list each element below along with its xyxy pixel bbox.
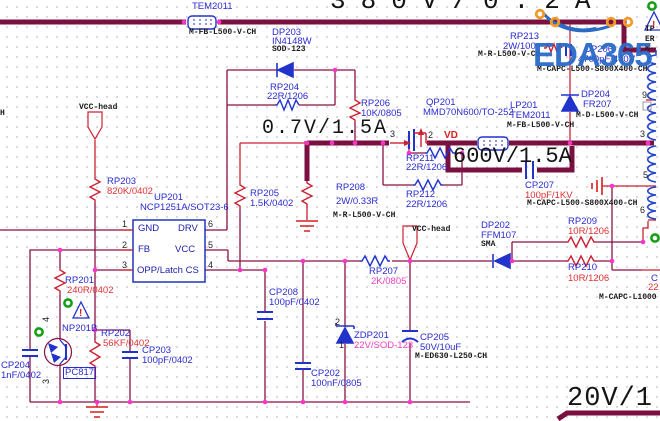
power-port-vcc-head-left[interactable] <box>88 112 102 139</box>
ref-rp208: RP208 <box>336 183 365 193</box>
value-rp208: 2W/0.33R <box>336 197 378 207</box>
eda365-watermark: EDA365 <box>533 36 652 74</box>
value-clipped-cap: 22 <box>648 283 659 293</box>
net-label-vd: VD <box>444 131 458 141</box>
optocoupler-np201b[interactable] <box>45 339 72 366</box>
resistors-red[interactable] <box>55 44 596 368</box>
pin-qp201-2: 2 <box>428 131 433 140</box>
pin-up201-3: 3 <box>122 261 127 270</box>
value-rp209: 10R/1206 <box>568 227 609 237</box>
pin-qp201-3: 3 <box>390 130 395 139</box>
resistor-rp205 <box>235 183 245 210</box>
partnum-cp207: M-CAPC-L500-S800X400-CH <box>527 200 637 208</box>
diode-dp202 <box>493 254 510 268</box>
pin-xfmr-3: 3 <box>640 130 645 139</box>
value-cp202: 100nF/0805 <box>311 379 362 389</box>
power-bus-wires[interactable] <box>0 22 660 419</box>
pin-up201-2: 2 <box>122 241 127 250</box>
value-cp208: 100pF/0402 <box>269 298 320 308</box>
rating-20v: 20V/1 <box>567 386 653 413</box>
value-rp206: 10K/0805 <box>361 109 402 119</box>
icpin-opp-latch-cs: OPP/Latch CS <box>137 266 199 276</box>
icpin-gnd: GND <box>138 224 159 234</box>
value-cp204: 1nF/0402 <box>1 371 41 381</box>
value-zdp201: 22V/SOD-123 <box>354 341 413 351</box>
rating-600v: 600V/1.5A <box>453 146 572 168</box>
pin-up201-4: 4 <box>208 261 213 270</box>
partnum-lp202: M-FB-L500-V-CH <box>189 29 256 37</box>
pin-xfmr-6: 6 <box>640 206 645 215</box>
rating-380v: 380V/0.2A <box>330 0 605 14</box>
capacitor-cp203 <box>122 352 138 358</box>
no-erc-icon <box>35 328 42 335</box>
transformer-winding[interactable] <box>648 50 656 219</box>
value-rp203: 820K/0402 <box>107 187 153 197</box>
capacitor-cp208 <box>257 312 273 319</box>
schematic-canvas[interactable]: ! ! EDA365 380V/0.2A0.7V/1.5A600V <box>0 0 660 421</box>
pin-xfmr-5: 5 <box>643 171 648 180</box>
pin-up201-5: 5 <box>208 241 213 250</box>
capacitor-cp204 <box>22 350 38 356</box>
pin-np201b-4: 4 <box>42 317 51 322</box>
resistor-rp203 <box>90 177 100 203</box>
no-erc-icon <box>64 299 71 306</box>
capacitor-cp202 <box>295 363 311 369</box>
value-rp207: 2K/0805 <box>371 277 406 287</box>
resistor-rp208 <box>302 181 312 208</box>
no-erc-icon <box>648 2 655 9</box>
partnum-cp-right: M-CAPC-L1000 <box>599 294 657 302</box>
resistor-rp209 <box>566 237 596 247</box>
partnum-dp203: SOD-123 <box>272 46 306 54</box>
ground-main <box>86 407 108 417</box>
value-cp203: 100pF/0402 <box>142 356 193 366</box>
value-rp204: 22R/1206 <box>267 92 308 102</box>
logo-dot-icon <box>624 18 632 26</box>
resistor-rp202 <box>90 340 100 368</box>
ref-lp202-type: TEM2011 <box>192 2 232 12</box>
value-rp205: 1.5K/0402 <box>250 199 293 209</box>
icpin-vcc: VCC <box>175 245 195 255</box>
pin-np201b-3: 3 <box>42 379 51 384</box>
value-qp201: MMD70N600/TO-252 <box>423 108 514 118</box>
resistor-rp207 <box>360 256 390 266</box>
pin-up201-1: 1 <box>122 220 127 229</box>
svg-text:!: ! <box>79 308 82 319</box>
resistor-rp201 <box>55 268 65 295</box>
value-rp212: 22R/1206 <box>406 200 447 210</box>
no-erc-icon <box>651 234 658 241</box>
pin-zdp201-2: 2 <box>335 318 340 327</box>
value-lp201: TEM2011 <box>510 111 550 121</box>
rating-0v7: 0.7V/1.5A <box>262 119 388 139</box>
value-dp204: FR207 <box>583 100 612 110</box>
value-up201: NCP1251A/SOT23-6 <box>140 203 229 213</box>
ground-rp208 <box>296 221 318 231</box>
ref-np201b: NP201B <box>62 324 97 334</box>
icpin-drv: DRV <box>178 224 198 234</box>
partnum-rp213: M-R-L500-V-CH <box>478 51 540 59</box>
pin-zdp201-1: 1 <box>339 341 344 350</box>
pin-up201-6: 6 <box>208 220 213 229</box>
partnum-rp208: M-R-L500-V-CH <box>333 212 395 220</box>
value-np201b: PC817 <box>64 368 95 378</box>
ref-tp-clipped: TP <box>645 26 655 34</box>
partnum-left-clipped: H <box>0 110 5 118</box>
partnum-lp201: M-FB-L500-V-CH <box>507 122 574 130</box>
port-vcc-head-right: VCC-head <box>412 226 450 234</box>
partnum-cp205: M-ED630-L250-CH <box>415 353 487 361</box>
partnum-dp204: M-D-L500-V-CH <box>576 112 638 120</box>
diode-dp204 <box>561 95 579 111</box>
value-rp201: 240R/0402 <box>67 286 113 296</box>
icpin-fb: FB <box>138 245 150 255</box>
ref-rp210: RP210 <box>568 263 597 273</box>
pin-xfmr-9: 9 <box>642 91 647 100</box>
earth-pin5 <box>592 177 602 195</box>
diode-dp203 <box>277 63 293 77</box>
partnum-dp202: SMA <box>481 241 495 249</box>
mosfet-qp201[interactable] <box>390 128 429 151</box>
port-vcc-head-left: VCC-head <box>79 104 117 112</box>
value-rp211: 22R/1206 <box>406 163 447 173</box>
value-rp210: 10R/1206 <box>568 274 609 284</box>
